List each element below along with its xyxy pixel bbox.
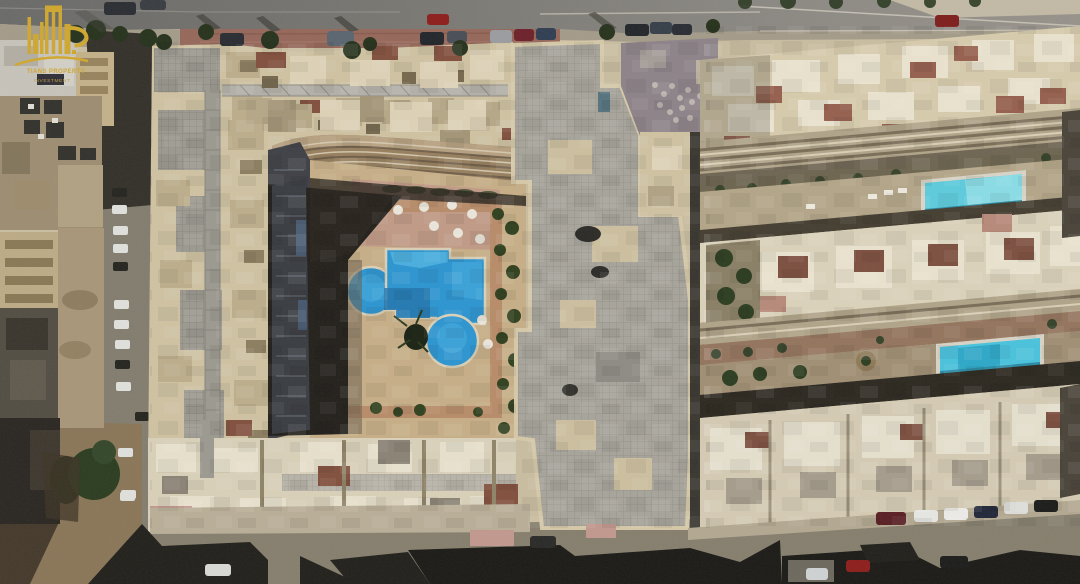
svg-text:INVESTMENT: INVESTMENT [34,78,71,84]
svg-text:TIANS PROPERTY: TIANS PROPERTY [27,69,85,75]
